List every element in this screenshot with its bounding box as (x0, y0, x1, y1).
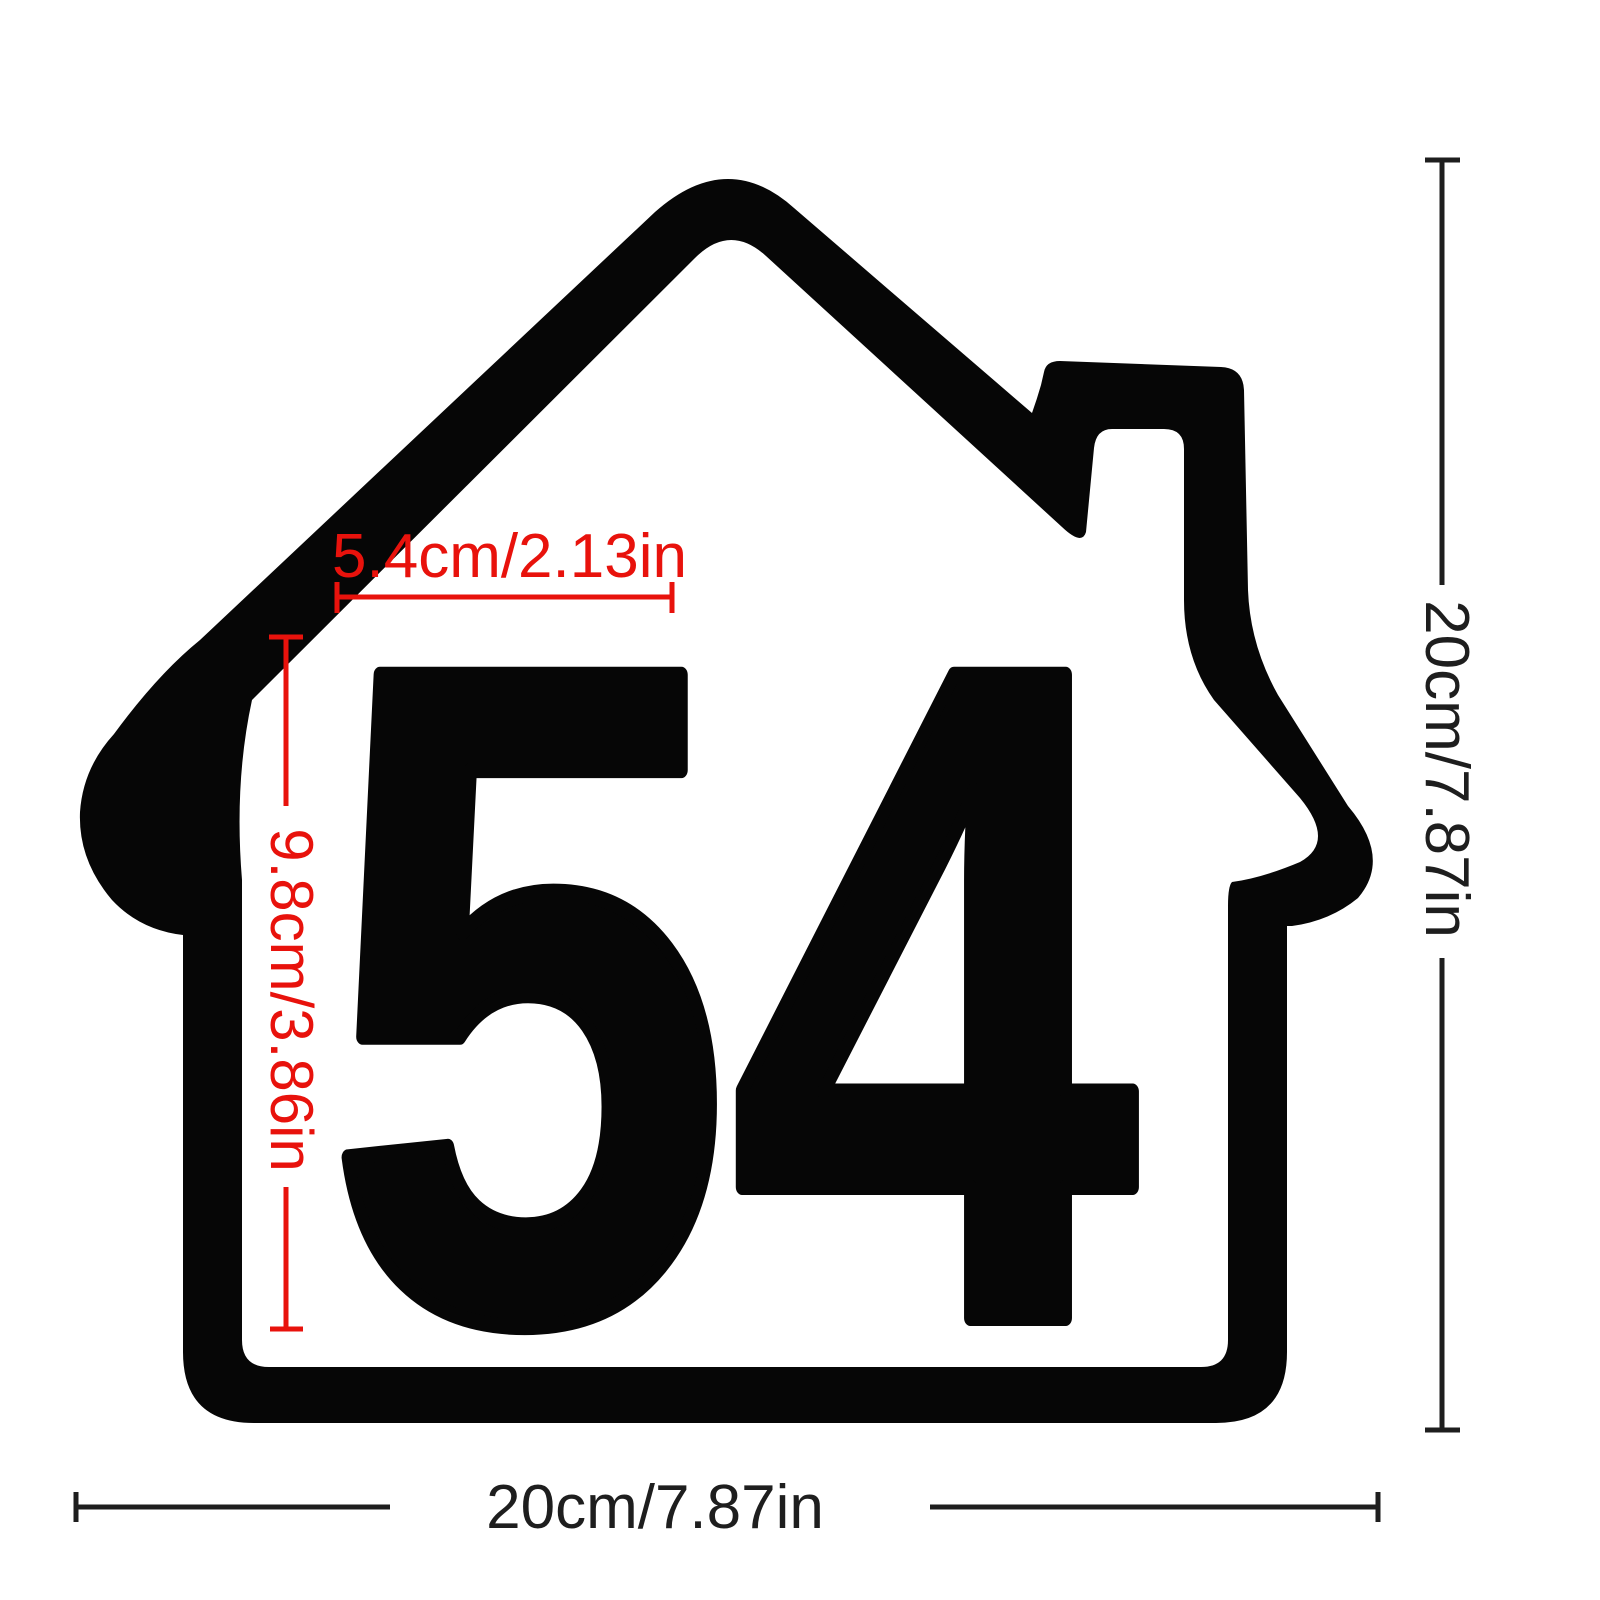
product-dimension-diagram: 54 5.4cm/2.13in 9.8cm/3.86in 20cm/7.87in… (0, 0, 1600, 1600)
digit-height-dimension: 9.8cm/3.86in (258, 637, 325, 1329)
digit-width-dimension: 5.4cm/2.13in (332, 522, 687, 613)
digit-height-label: 9.8cm/3.86in (258, 828, 325, 1172)
overall-width-dimension: 20cm/7.87in (76, 1473, 1378, 1542)
digit-width-label: 5.4cm/2.13in (332, 522, 687, 591)
overall-height-label: 20cm/7.87in (1412, 600, 1481, 938)
diagram-canvas: 54 5.4cm/2.13in 9.8cm/3.86in 20cm/7.87in… (0, 0, 1600, 1600)
overall-width-label: 20cm/7.87in (486, 1473, 824, 1542)
house-number: 54 (325, 472, 1141, 1517)
overall-height-dimension: 20cm/7.87in (1412, 160, 1481, 1430)
